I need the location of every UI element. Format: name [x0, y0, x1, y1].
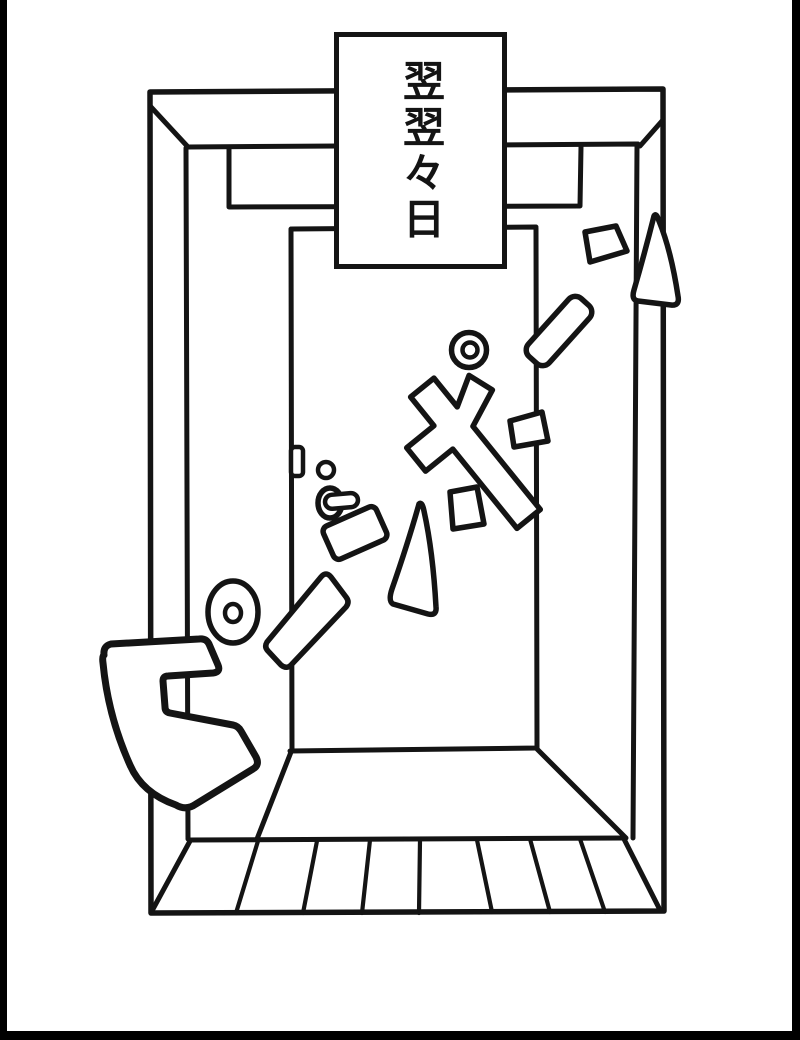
floor-threshold-lines [257, 749, 626, 839]
floor-plank-lines [236, 839, 605, 913]
katakana-pi-body-icon [103, 639, 258, 808]
curved-wedge-piece [633, 215, 678, 305]
caption-box: 翌翌々日 [334, 32, 507, 269]
caption-text: 翌翌々日 [400, 59, 442, 243]
door-lock-plate [291, 447, 303, 476]
door-thumbturn-icon [318, 462, 334, 478]
broken-square-piece-b [450, 487, 484, 529]
door-handle-lever [324, 493, 358, 510]
wedge-stroke-piece [390, 503, 436, 614]
pi-handakuten-inner-icon [225, 604, 241, 622]
door-hardware [291, 447, 359, 518]
katakana-dash-piece [522, 293, 595, 370]
broken-square-piece-a [510, 412, 548, 447]
broken-square-piece-c [585, 226, 627, 262]
po-handakuten-inner-icon [463, 343, 478, 358]
katakana-n-stroke-piece [266, 574, 348, 667]
